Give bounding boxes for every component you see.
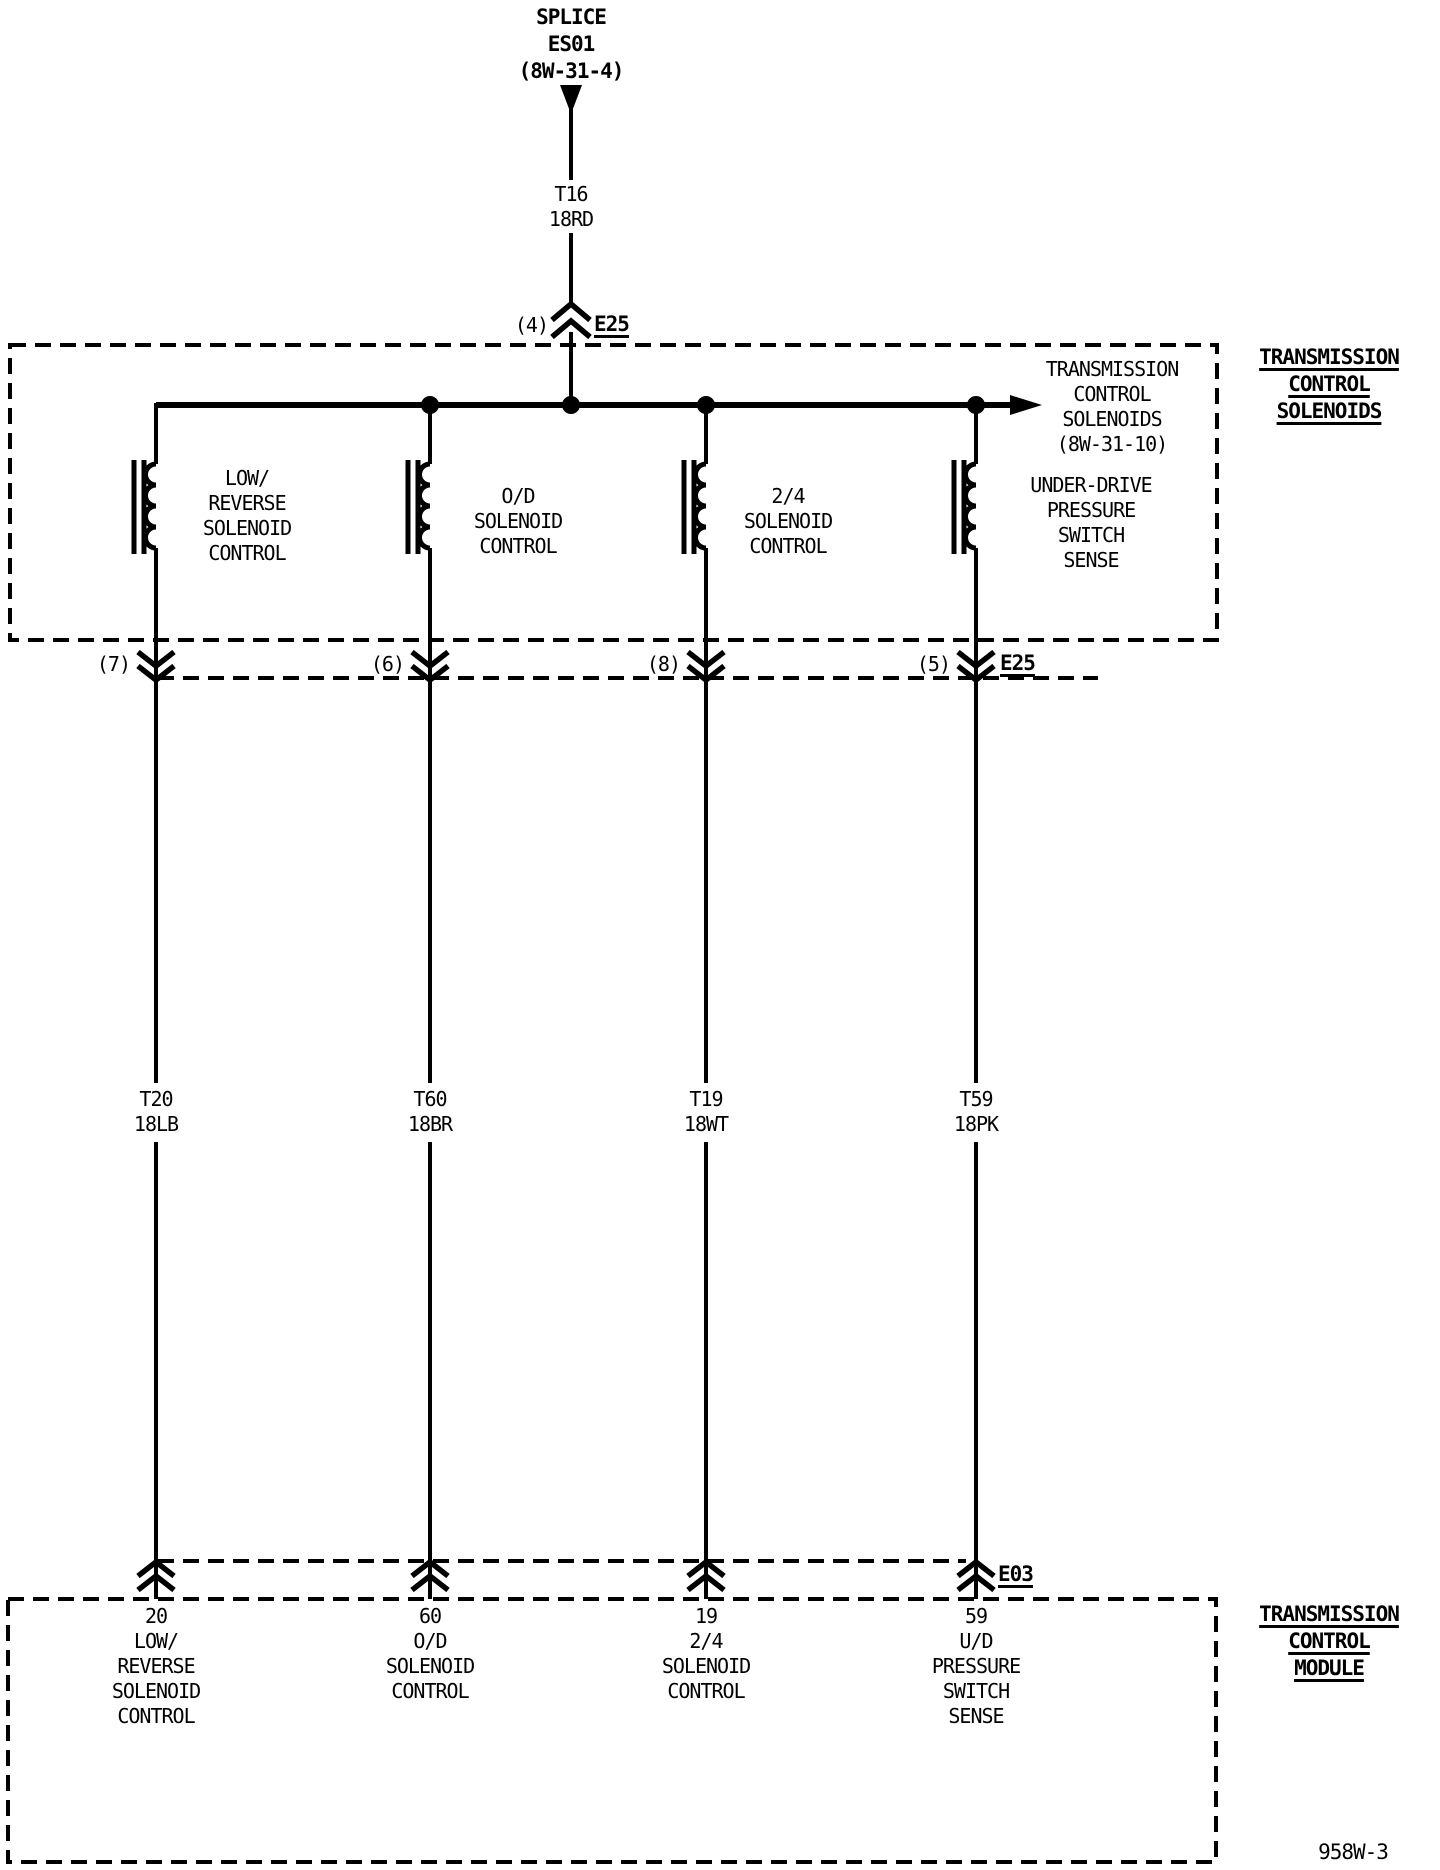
solenoid-coil-icon — [966, 464, 976, 548]
solenoid-label: LOW/ REVERSE SOLENOID CONTROL — [203, 466, 291, 566]
wire-label: T59 18PK — [954, 1087, 998, 1137]
solenoid-label: UNDER-DRIVE PRESSURE SWITCH SENSE — [1030, 473, 1151, 573]
wire-label: T60 18BR — [408, 1087, 452, 1137]
diagram-ref-label: 958W-3 — [1298, 1840, 1408, 1865]
tcm-box-title: TRANSMISSION CONTROL MODULE — [1259, 1601, 1399, 1682]
e25-pin-label: (6) — [300, 652, 404, 677]
wiring-diagram-page: SPLICE ES01 (8W-31-4) T16 18RD (4) E25 T… — [0, 0, 1440, 1870]
e25-pin-label: (8) — [576, 652, 680, 677]
solenoid-coil-icon — [146, 464, 157, 548]
solenoid-coil-icon — [696, 464, 707, 548]
wire-label: T20 18LB — [134, 1087, 178, 1137]
branch-wires — [134, 403, 976, 1599]
solenoid-coil-icon — [420, 464, 431, 548]
tcm-pin-label: 19 2/4 SOLENOID CONTROL — [662, 1604, 750, 1704]
splice-label: SPLICE ES01 (8W-31-4) — [519, 4, 624, 85]
tcm-pin-label: 59 U/D PRESSURE SWITCH SENSE — [932, 1604, 1020, 1729]
e25-top-connector-label: E25 — [594, 312, 629, 337]
feed-wire-label: T16 18RD — [549, 182, 593, 232]
diagram-linework — [0, 0, 1440, 1870]
solenoid-label: 2/4 SOLENOID CONTROL — [744, 484, 832, 559]
wire-label: T19 18WT — [684, 1087, 728, 1137]
solenoid-offpage-ref: TRANSMISSION CONTROL SOLENOIDS (8W-31-10… — [1046, 357, 1179, 457]
e03-connector-label: E03 — [998, 1562, 1033, 1587]
tcm-pin-label: 60 O/D SOLENOID CONTROL — [386, 1604, 474, 1704]
solenoid-box-title: TRANSMISSION CONTROL SOLENOIDS — [1259, 344, 1399, 425]
tcm-pin-label: 20 LOW/ REVERSE SOLENOID CONTROL — [112, 1604, 200, 1729]
solenoid-label: O/D SOLENOID CONTROL — [474, 484, 562, 559]
e25-pin-label: (7) — [26, 652, 130, 677]
e25-pin-label: (5) — [846, 652, 950, 677]
offpage-flow-arrow-icon — [1010, 395, 1042, 415]
junction-dot — [562, 396, 580, 414]
e25-top-pin-label: (4) — [480, 313, 548, 338]
e25-bottom-connector-label: E25 — [1000, 651, 1035, 676]
e03-chevron-icon — [138, 1562, 994, 1590]
